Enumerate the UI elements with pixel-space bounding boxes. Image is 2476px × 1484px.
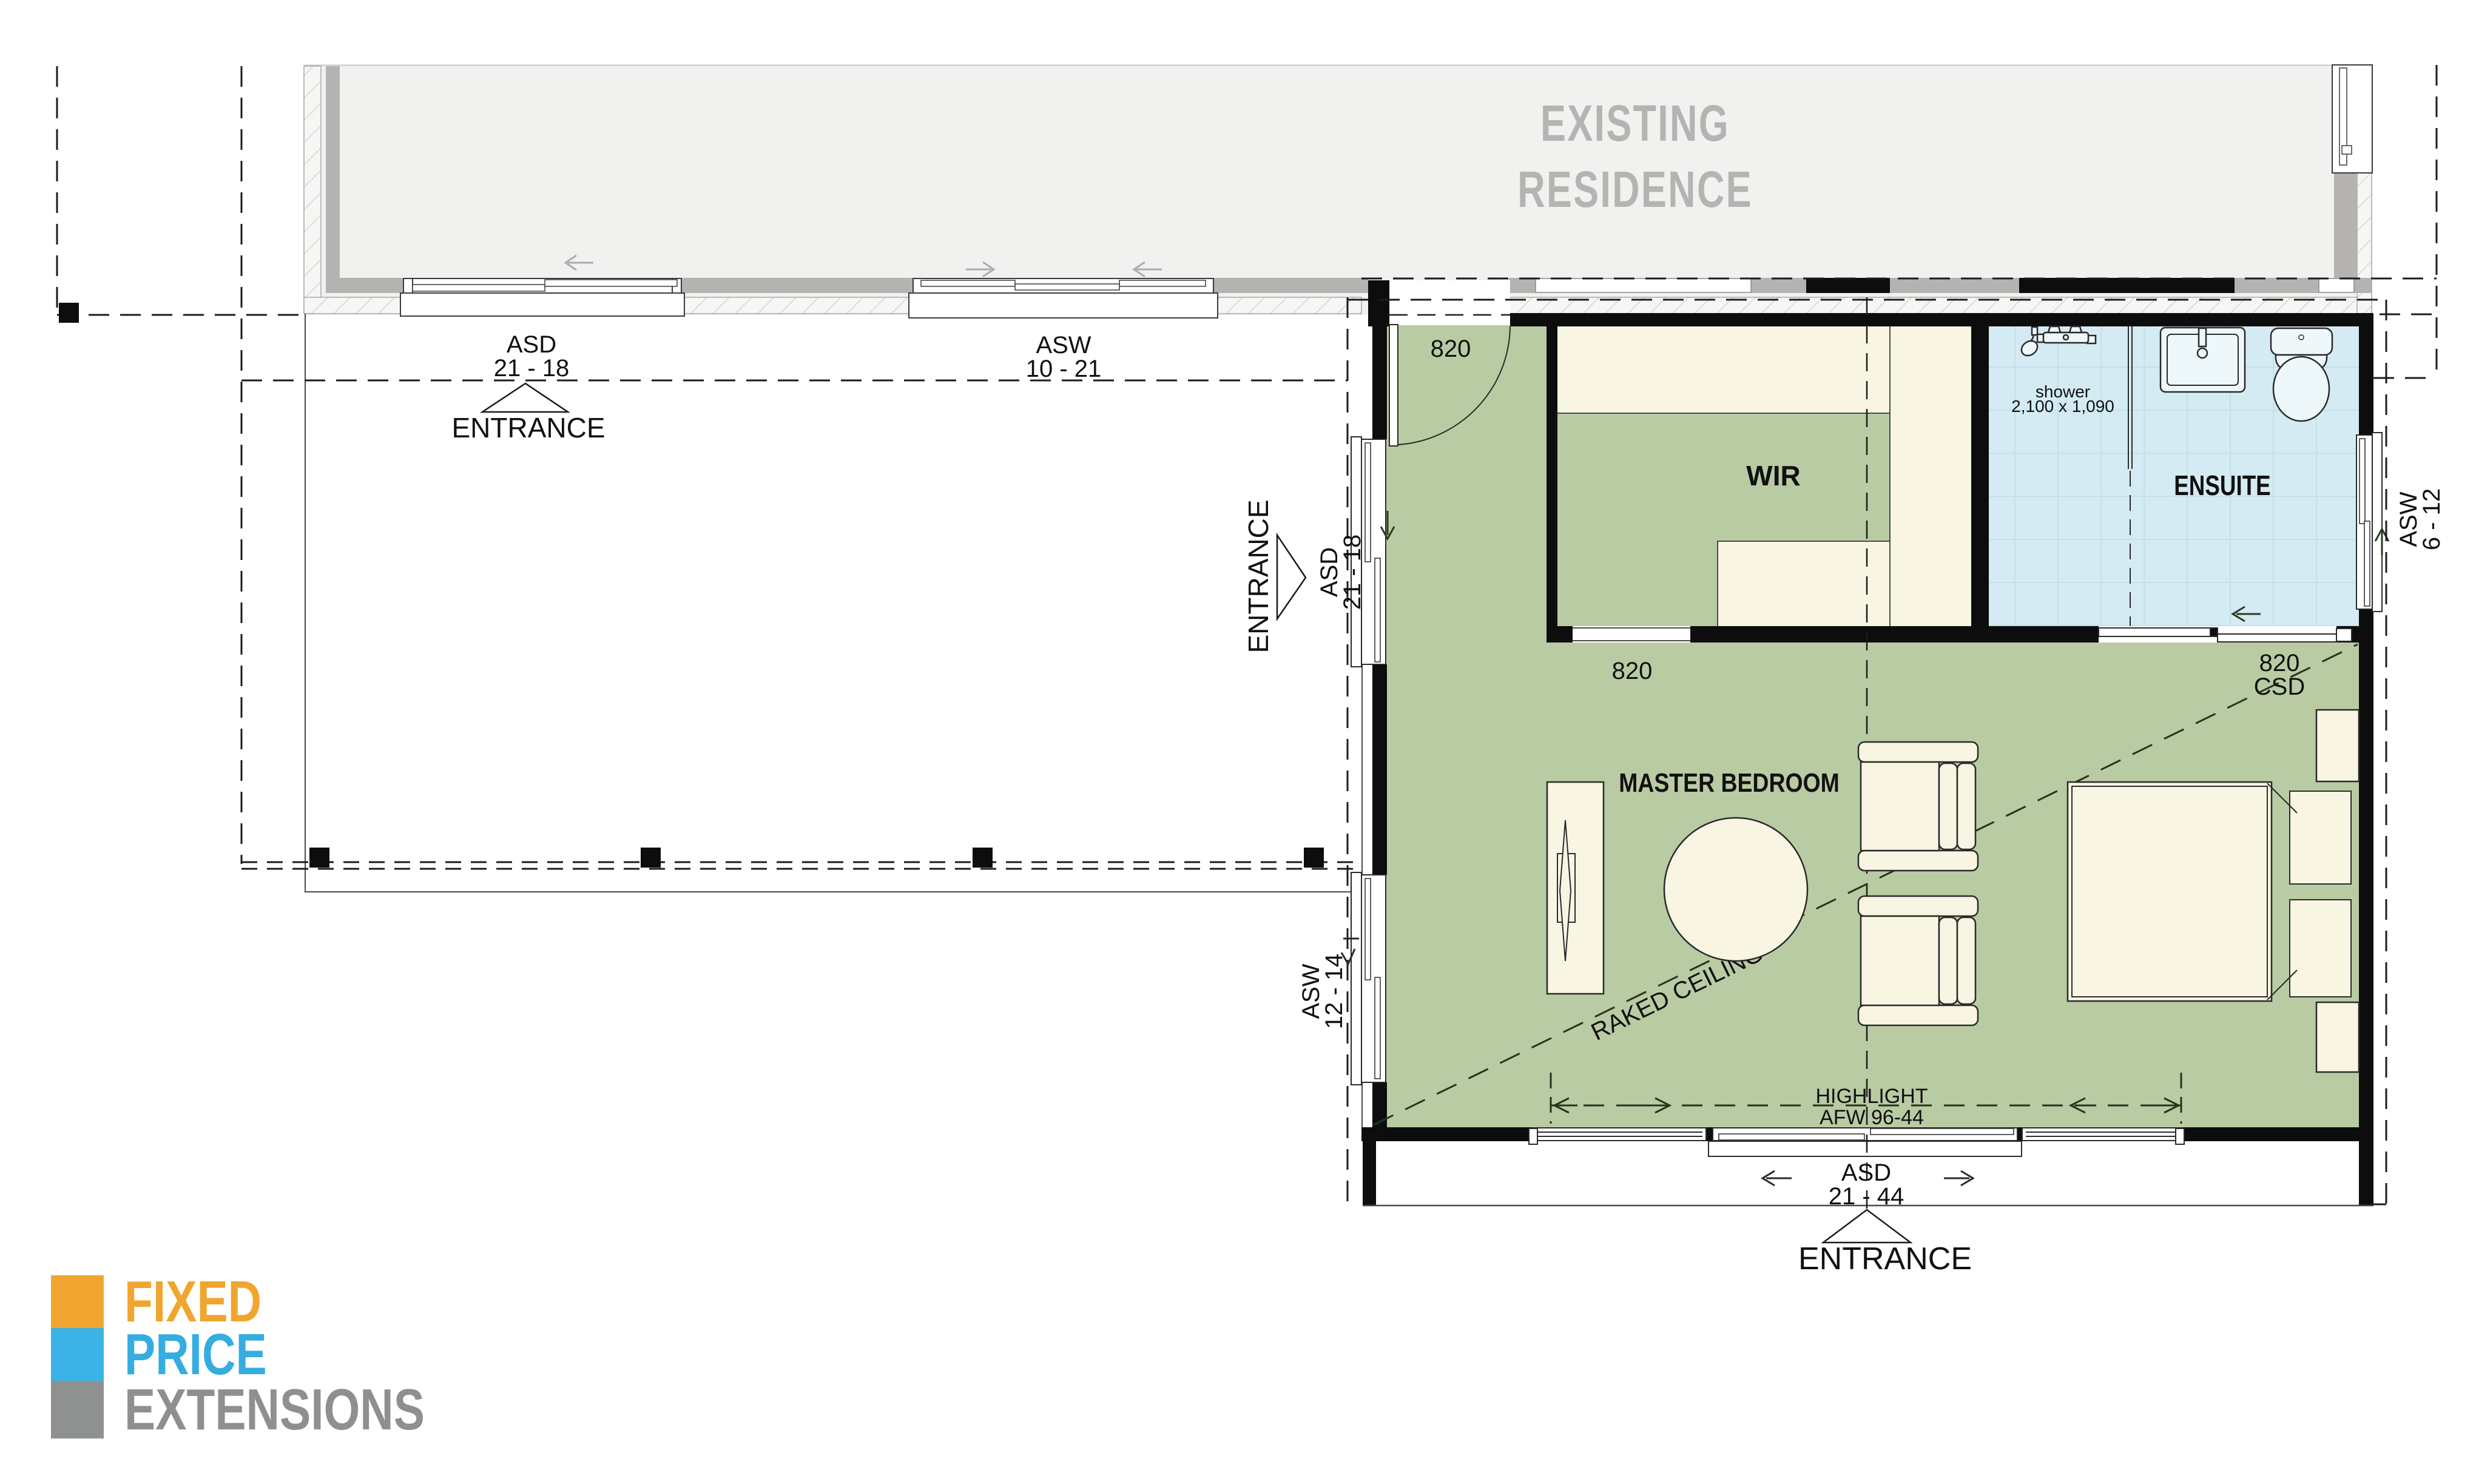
svg-text:EXISTING: EXISTING [1540,95,1730,152]
svg-text:ENTRANCE: ENTRANCE [1798,1241,1972,1277]
svg-text:RESIDENCE: RESIDENCE [1517,161,1753,218]
svg-text:ASD: ASD [507,331,556,358]
svg-text:21 - 18: 21 - 18 [1339,535,1366,610]
svg-text:ENTRANCE: ENTRANCE [451,412,605,444]
svg-text:ENTRANCE: ENTRANCE [1243,499,1274,653]
svg-text:10 - 21: 10 - 21 [1026,356,1102,382]
svg-text:ENSUITE: ENSUITE [2174,470,2270,501]
svg-text:21 - 44: 21 - 44 [1829,1183,1904,1210]
svg-text:ASW: ASW [1036,332,1091,359]
svg-text:820: 820 [1431,336,1471,362]
svg-text:EXTENSIONS: EXTENSIONS [124,1377,425,1442]
svg-text:ASD: ASD [1841,1159,1891,1186]
svg-text:CSD: CSD [2254,673,2305,700]
svg-text:820: 820 [1612,658,1653,684]
svg-text:820: 820 [2259,650,2300,676]
svg-text:2,100 x 1,090: 2,100 x 1,090 [2011,397,2114,416]
svg-text:MASTER BEDROOM: MASTER BEDROOM [1619,767,1840,798]
svg-text:6 - 12: 6 - 12 [2418,488,2445,550]
svg-text:AFW 96-44: AFW 96-44 [1820,1106,1924,1129]
svg-text:12 - 14: 12 - 14 [1321,954,1348,1030]
svg-text:21 - 18: 21 - 18 [494,355,570,382]
svg-text:HIGHLIGHT: HIGHLIGHT [1815,1085,1928,1108]
svg-text:WIR: WIR [1746,460,1800,491]
